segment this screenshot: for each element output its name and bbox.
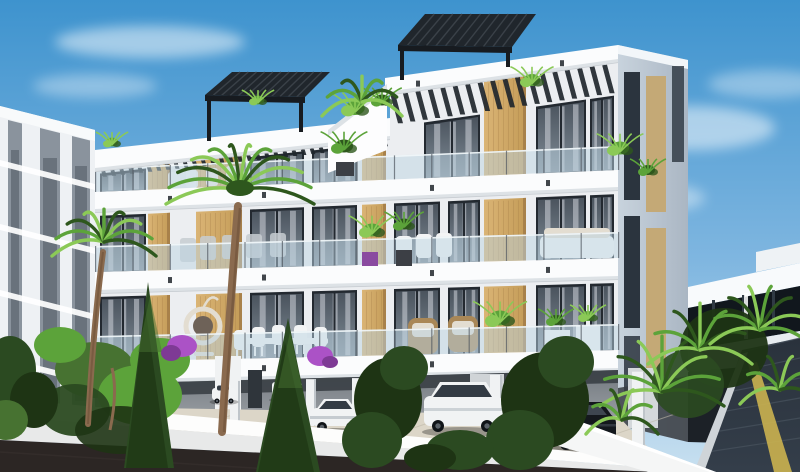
balustrade-post [469,236,470,262]
foliage-blob [380,346,428,390]
balustrade-post [581,233,582,259]
balustrade-post [394,155,395,179]
balustrade-post [506,151,507,175]
downlight-mark [262,365,266,371]
pergola-post [207,99,211,141]
side-window-strip [624,216,640,328]
balustrade-post [132,245,133,271]
wheel-hub [230,400,232,402]
downlight-mark [560,60,564,66]
scene-svg [0,0,800,472]
egg-chair-seat [193,316,213,336]
balustrade-post [431,154,432,178]
suv-glass [433,385,492,397]
magenta-bush [161,345,181,361]
balustrade-post [244,242,245,268]
balustrade-post [282,241,283,267]
balustrade-post [319,159,320,183]
purple-planter [362,252,378,266]
cloud [33,74,157,98]
wheel-hub [435,423,440,428]
plant-pot [396,250,412,266]
pergola-post [506,51,510,67]
balustrade-post [431,328,432,354]
downlight-mark [168,277,172,283]
downlight-mark [430,361,434,367]
wheel-hub [484,423,489,428]
cloud [55,26,245,58]
downlight-mark [262,192,266,198]
balustrade-post [618,232,619,258]
balustrade-post [132,166,133,190]
balustrade-post [469,327,470,353]
balustrade-post [357,330,358,356]
balustrade-post [95,246,96,272]
downlight-mark [546,267,550,273]
pergola-post [400,49,404,80]
downlight-mark [416,81,420,87]
wheel-hub [216,400,218,402]
balustrade-post [207,163,208,187]
suv-sill [424,408,502,411]
pergola-post [299,101,303,132]
balustrade-post [170,244,171,270]
balustrade-post [357,239,358,265]
foliage-blob [538,336,594,388]
foliage-blob [404,444,456,472]
side-timber-panel [646,76,666,212]
balustrade-post [319,240,320,266]
downlight-mark [430,185,434,191]
balustrade-post [431,237,432,263]
foliage-blob [34,327,86,363]
balustrade-post [244,333,245,359]
balustrade-post [618,324,619,350]
balustrade-post [543,234,544,260]
magenta-bush [322,356,338,368]
parking-door [248,370,262,408]
downlight-mark [430,270,434,276]
balustrade-post [506,327,507,353]
downlight-mark [262,275,266,281]
side-window-strip [672,66,684,162]
architectural-render-canvas [0,0,800,472]
balustrade-post [207,333,208,359]
balustrade-post [581,148,582,172]
plant-pot [336,162,354,176]
balustrade-post [506,235,507,261]
balustrade-post [543,149,544,173]
palm-crown-core [226,180,254,196]
foliage-blob [486,410,554,470]
foliage-blob [342,412,402,468]
balustrade-post [207,243,208,269]
downlight-mark [546,180,550,186]
balustrade-post [394,238,395,264]
balustrade-post [469,152,470,176]
